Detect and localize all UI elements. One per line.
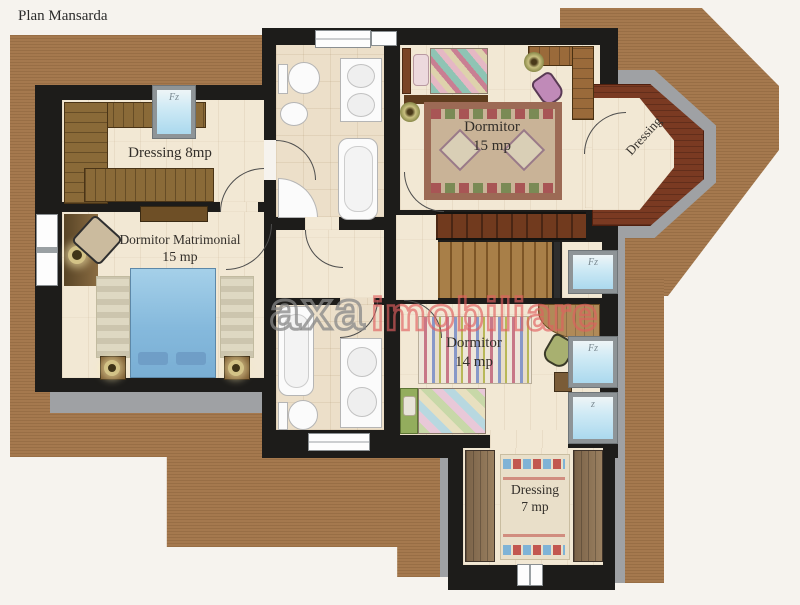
window-dormitor14-lower: z [568, 392, 618, 444]
window-dormitor14-upper: Fz [568, 336, 618, 388]
window-label: Fz [569, 343, 617, 354]
label-dormitor15: Dormitor 15 mp [432, 118, 552, 156]
round-rug [524, 52, 544, 72]
window-dressing8: Fz [152, 85, 196, 139]
pillow [138, 352, 168, 365]
window-label: z [569, 399, 617, 410]
bathtub-icon [278, 306, 314, 396]
rug-left [96, 276, 130, 358]
wardrobe-left-dressing7 [465, 450, 495, 562]
door-marker-dressing7 [517, 564, 543, 586]
room-name: Dressing [494, 482, 576, 499]
desk-dormitor15-side [572, 46, 594, 120]
toilet-tank-icon [278, 402, 288, 430]
terrace-right-band [625, 278, 664, 583]
bed-dormitor14 [418, 388, 486, 434]
floor-passage-dressing7 [490, 430, 568, 450]
stairs-upper-cabinet [436, 212, 586, 240]
double-sink-icon [340, 58, 382, 122]
window-stairs: Fz [568, 250, 618, 294]
bed-headboard [402, 48, 411, 94]
wardrobe-bottom-dressing8 [84, 168, 214, 202]
page-title: Plan Mansarda [18, 8, 108, 25]
window-bath-top [315, 30, 371, 48]
room-area: 7 mp [494, 499, 576, 516]
window-bath-bottom [308, 433, 370, 451]
room-area: 15 mp [432, 137, 552, 156]
pillow [403, 396, 416, 416]
label-dressing7: Dressing 7 mp [494, 482, 576, 516]
terrace-top [10, 35, 290, 90]
window-label: Fz [153, 92, 195, 103]
lamp-icon [228, 360, 244, 376]
staircase [438, 242, 552, 298]
pillow [176, 352, 206, 365]
round-rug [400, 102, 420, 122]
double-sink-icon [340, 338, 382, 428]
floor-stair-hall [396, 215, 438, 300]
toilet-icon [288, 400, 318, 430]
door-gap [264, 140, 276, 180]
room-area: 14 mp [412, 353, 536, 372]
bathtub-icon [338, 138, 378, 220]
bidet-icon [280, 102, 308, 126]
room-name: Dormitor [432, 118, 552, 137]
wardrobe-right-dressing7 [573, 450, 603, 562]
lamp-icon [104, 360, 120, 376]
window-label: Fz [569, 257, 617, 268]
bed-dormitor15 [430, 48, 488, 94]
window-gap-top [371, 31, 397, 46]
label-dressing8: Dressing 8mp [90, 144, 250, 163]
floor-plan: Plan Mansarda Dressing Fz Dressing 8mp [0, 0, 800, 605]
door-gap [305, 217, 339, 230]
label-dormitor14: Dormitor 14 mp [412, 334, 536, 372]
rug-right [220, 276, 254, 358]
window-left-wall [36, 214, 58, 286]
stair-rail [554, 242, 560, 298]
dresser [140, 206, 208, 222]
pillow [413, 54, 429, 86]
toilet-tank-icon [278, 64, 288, 94]
toilet-icon [288, 62, 320, 94]
